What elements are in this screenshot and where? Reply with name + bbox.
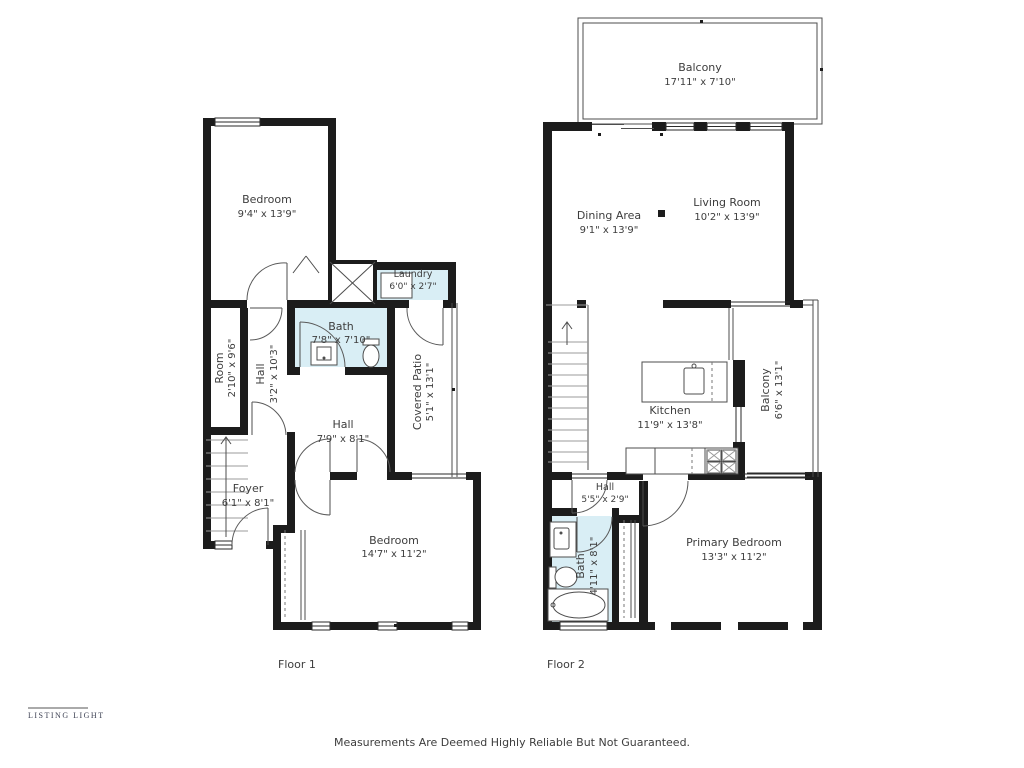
room-dims: 17'11" x 7'10" xyxy=(664,77,736,88)
room-label: Living Room xyxy=(693,196,761,209)
room-label: Bath xyxy=(328,320,354,333)
room-dims: 9'1" x 13'9" xyxy=(580,225,639,236)
room-label: Hall xyxy=(596,482,614,493)
room-label: Dining Area xyxy=(577,209,641,222)
disclaimer-text: Measurements Are Deemed Highly Reliable … xyxy=(334,736,690,749)
room-dims: 3'2" x 10'3" xyxy=(269,345,280,404)
room-label: Covered Patio xyxy=(411,354,424,430)
floor2-label: Floor 2 xyxy=(547,658,585,671)
room-dims: 6'0" x 2'7" xyxy=(389,282,436,292)
kitchen-fixtures xyxy=(626,362,738,474)
floor1-label: Floor 1 xyxy=(278,658,316,671)
room-dims: 6'6" x 13'1" xyxy=(774,361,785,420)
room-label: Bedroom xyxy=(242,193,292,206)
room-dims: 9'4" x 13'9" xyxy=(238,209,297,220)
listing-light-logo: LISTING LIGHT xyxy=(28,711,105,720)
floor-plan-drawing: Bedroom 9'4" x 13'9" Laundry 6'0" x 2'7"… xyxy=(0,0,1024,768)
room-label: Hall xyxy=(254,363,267,384)
room-dims: 13'3" x 11'2" xyxy=(701,552,766,563)
room-label: Kitchen xyxy=(649,404,690,417)
room-label: Bath xyxy=(574,553,587,579)
room-label: Laundry xyxy=(394,269,433,280)
floor2-stairs xyxy=(546,305,588,470)
room-label: Room xyxy=(213,352,226,383)
room-dims: 7'8" x 7'10" xyxy=(312,335,371,346)
room-label: Foyer xyxy=(233,482,264,495)
room-dims: 10'2" x 13'9" xyxy=(694,212,759,223)
room-label: Hall xyxy=(332,418,353,431)
room-dims: 2'10" x 9'6" xyxy=(227,339,238,398)
room-dims: 6'1" x 8'1" xyxy=(222,498,274,509)
room-dims: 7'9" x 8'1" xyxy=(317,434,369,445)
room-dims: 11'9" x 13'8" xyxy=(637,420,702,431)
room-dims: 14'7" x 11'2" xyxy=(361,549,426,560)
floor2-plan: Balcony 17'11" x 7'10" Dining Area 9'1" … xyxy=(543,18,823,671)
room-label: Bedroom xyxy=(369,534,419,547)
kitchen-sink-fixture xyxy=(684,368,704,394)
floor-plan-page: Bedroom 9'4" x 13'9" Laundry 6'0" x 2'7"… xyxy=(0,0,1024,768)
floor1-closet-door xyxy=(285,530,305,620)
floor2-closet-door xyxy=(624,520,635,618)
shower-fixture xyxy=(330,262,375,304)
room-dims: 5'5" x 2'9" xyxy=(581,495,628,505)
floor2-top-windows xyxy=(592,123,782,130)
footer: LISTING LIGHT Measurements Are Deemed Hi… xyxy=(28,708,690,749)
room-dims: 4'11" x 8'1" xyxy=(589,537,600,596)
room-dims: 5'1" x 13'1" xyxy=(425,363,436,422)
floor1-plan: Bedroom 9'4" x 13'9" Laundry 6'0" x 2'7"… xyxy=(203,118,481,671)
kitchen-counter xyxy=(626,448,707,474)
column-marker xyxy=(658,210,665,217)
room-label: Balcony xyxy=(678,61,722,74)
room-label: Balcony xyxy=(759,368,772,412)
room-label: Primary Bedroom xyxy=(686,536,782,549)
toilet-fixture xyxy=(363,345,379,367)
